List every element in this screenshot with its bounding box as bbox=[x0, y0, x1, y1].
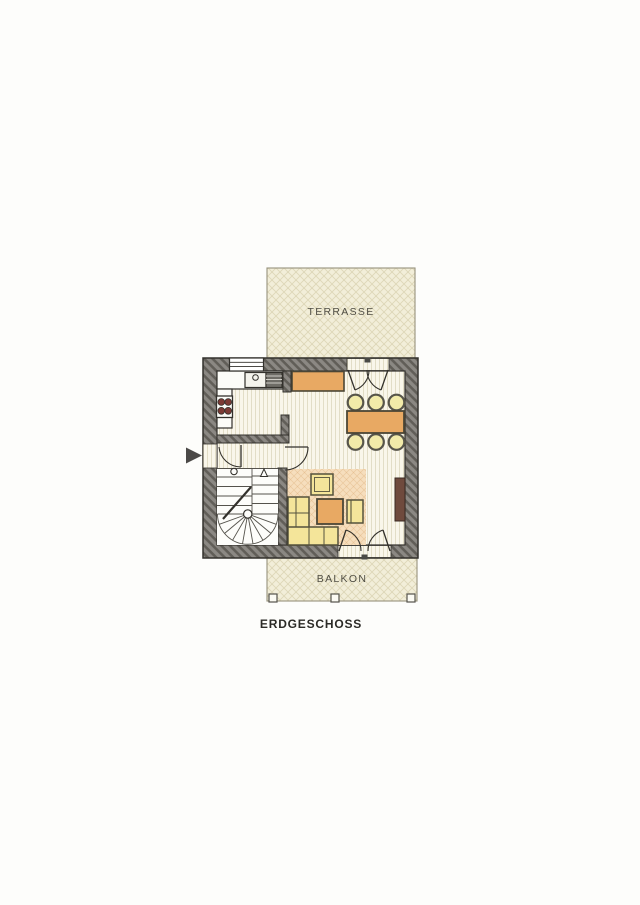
balcony-post bbox=[269, 594, 277, 602]
dining-chair bbox=[368, 395, 384, 411]
kitchen-window bbox=[230, 358, 264, 371]
stove bbox=[217, 396, 233, 418]
sideboard bbox=[292, 372, 344, 392]
stair-newel bbox=[244, 510, 252, 518]
stove-burner bbox=[225, 399, 232, 406]
entrance-arrow-icon bbox=[186, 448, 202, 464]
dining-chair bbox=[389, 434, 405, 450]
balcony-area: BALKON bbox=[267, 558, 417, 602]
kitchen-sink bbox=[245, 373, 266, 388]
floorplan-page: TERRASSE BALKON bbox=[0, 0, 640, 905]
terrace-label: TERRASSE bbox=[308, 306, 375, 318]
balcony-label: BALKON bbox=[317, 573, 367, 585]
stove-burner bbox=[225, 407, 232, 414]
floor-title: ERDGESCHOSS bbox=[260, 617, 362, 631]
dining-chair bbox=[348, 434, 364, 450]
side-table bbox=[311, 474, 333, 495]
balcony-post bbox=[407, 594, 415, 602]
stair-start-marker bbox=[231, 468, 237, 474]
stove-burner bbox=[218, 407, 225, 414]
dining-chair bbox=[389, 395, 405, 411]
terrace-area: TERRASSE bbox=[267, 268, 415, 358]
armchair bbox=[347, 500, 363, 523]
dining-chair bbox=[348, 395, 364, 411]
radiator bbox=[395, 478, 405, 521]
balcony-post bbox=[331, 594, 339, 602]
stove-burner bbox=[218, 399, 225, 406]
dining-chair bbox=[368, 434, 384, 450]
kitchen-drainer bbox=[266, 373, 282, 388]
staircase bbox=[217, 468, 278, 545]
coffee-table bbox=[317, 499, 343, 524]
dining-table bbox=[347, 411, 404, 433]
floorplan-drawing: TERRASSE BALKON bbox=[0, 0, 640, 905]
